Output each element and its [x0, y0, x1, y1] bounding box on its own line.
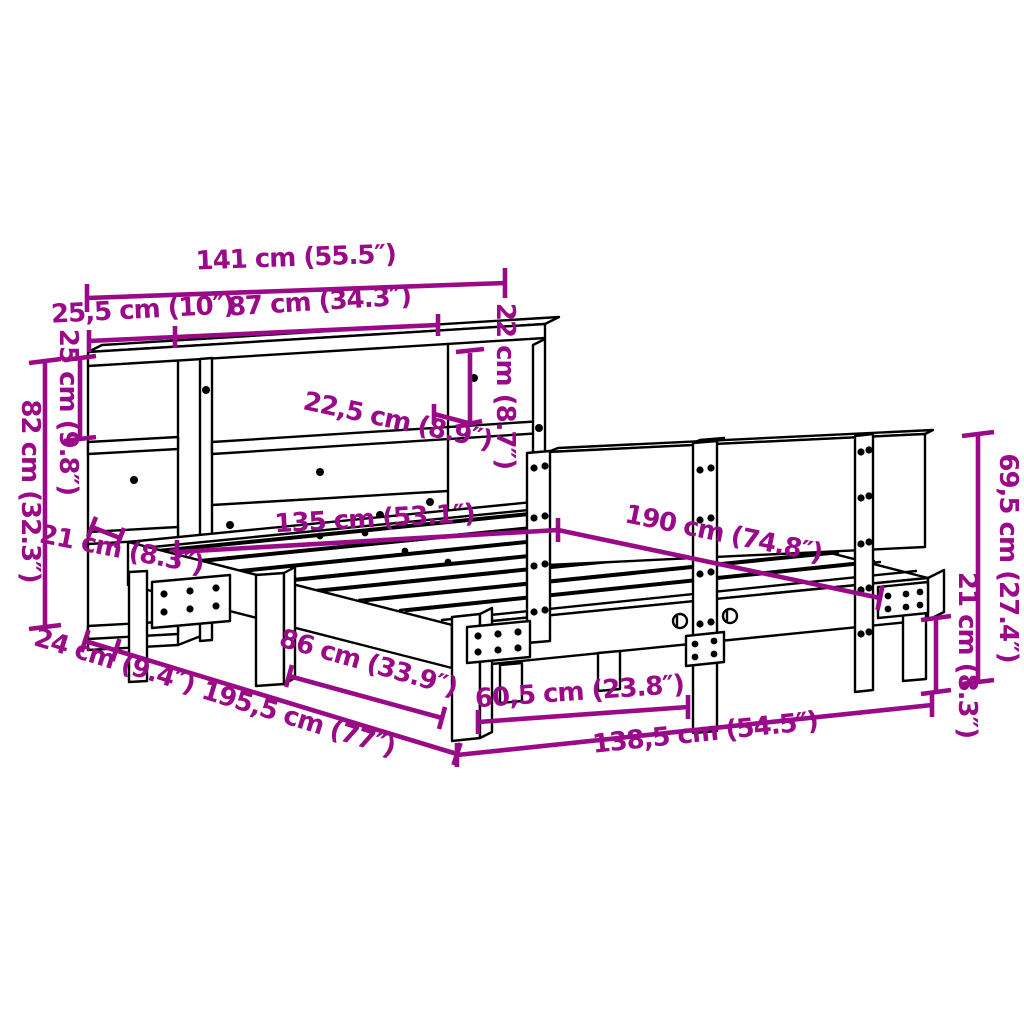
rail-post-left: [527, 451, 550, 643]
cam-lock-fitting-2: [723, 609, 737, 623]
dim-label-main-shelf-width: 87 cm (34.3″): [227, 281, 412, 322]
dim-label-shelf-opening-height: 22 cm (8.7″): [490, 303, 520, 469]
dim-label-headboard-total-width: 141 cm (55.5″): [195, 240, 396, 277]
bed-dimension-diagram: 141 cm (55.5″) 25,5 cm (10″) 87 cm (34.3…: [0, 0, 1024, 1024]
dimension-rail-board-height: 21 cm (8.3″): [37, 517, 206, 581]
bracket-plate-right: [878, 582, 928, 618]
foot-rail-end: [928, 570, 944, 620]
dim-label-side-rail-height: 69,5 cm (27.4″): [993, 453, 1023, 662]
dim-label-leg-height: 21 cm (8.3″): [952, 572, 982, 738]
headboard-cubby-shelf-1: [88, 437, 178, 454]
dim-label-total-length: 195,5 cm (77″): [198, 676, 398, 763]
rail-post-mid: [693, 441, 717, 733]
headboard-end-panel: [533, 339, 545, 458]
bracket-plate-side: [152, 575, 230, 628]
rail-post-right: [855, 434, 873, 692]
cam-lock-fitting-1: [673, 614, 687, 628]
rail-post-mid-plate: [686, 632, 724, 666]
bracket-plate-foot: [467, 621, 530, 663]
dim-label-cubby-height: 25 cm (9.8″): [53, 329, 83, 495]
dim-label-side-shelf-width: 25,5 cm (10″): [50, 290, 235, 330]
dim-label-headboard-height: 82 cm (32.3″): [15, 399, 45, 582]
leg-side-center: [256, 573, 284, 686]
